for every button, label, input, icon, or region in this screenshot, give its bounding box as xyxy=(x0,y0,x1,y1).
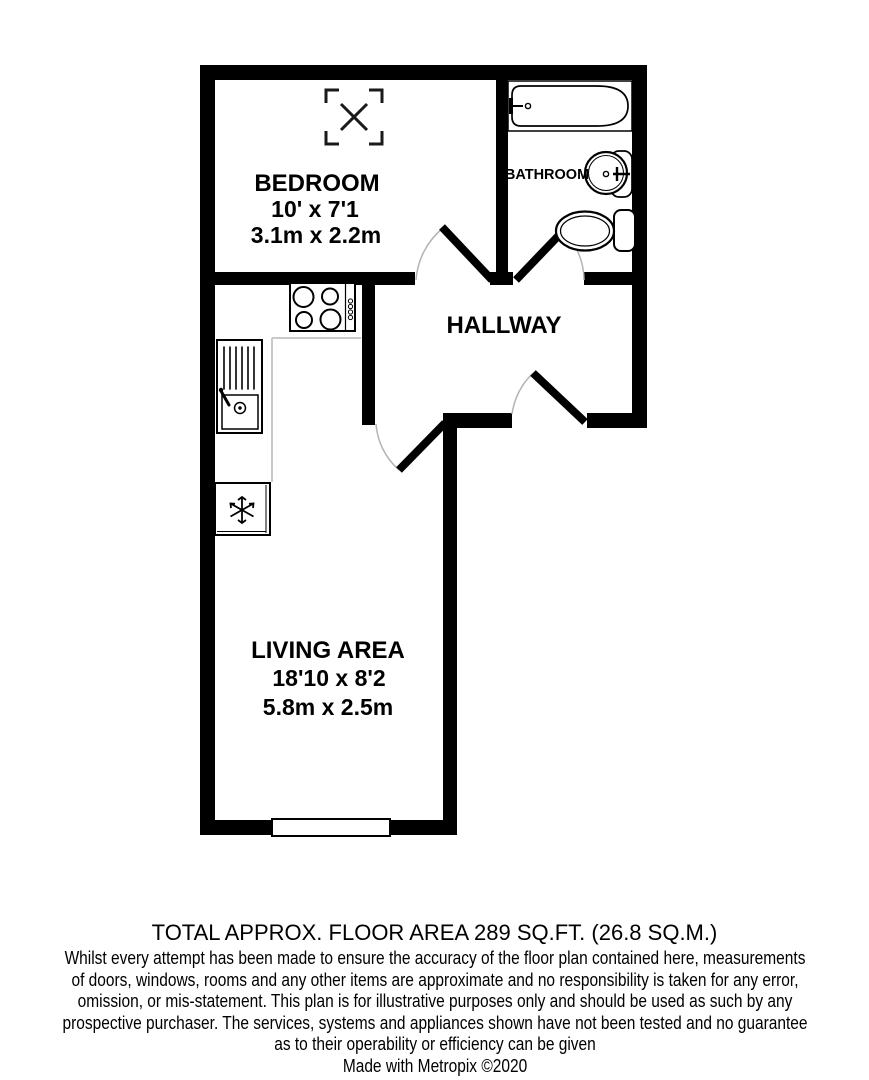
disclaimer: Whilst every attempt has been made to en… xyxy=(0,948,869,1077)
floorplan-page: { "rooms": { "bedroom": { "label": "BEDR… xyxy=(0,0,869,1080)
disclaimer-line: of doors, windows, rooms and any other i… xyxy=(0,970,869,992)
door-leaf xyxy=(442,227,492,280)
disclaimer-line: omission, or mis-statement. This plan is… xyxy=(0,991,869,1013)
window-icon xyxy=(272,819,390,836)
bedroom-dimensions-metric: 3.1m x 2.2m xyxy=(251,222,381,249)
hallway-label: HALLWAY xyxy=(446,312,561,340)
toilet-icon xyxy=(556,210,635,251)
floorplan-drawing xyxy=(0,0,869,900)
basin-icon xyxy=(585,151,632,197)
door-swing-arc xyxy=(416,228,443,280)
disclaimer-line: Whilst every attempt has been made to en… xyxy=(0,948,869,970)
bathroom-label: BATHROOM xyxy=(505,167,589,183)
disclaimer-line: prospective purchaser. The services, sys… xyxy=(0,1013,869,1035)
wall-hallway-bottom-right xyxy=(587,413,647,428)
living-area-dimensions-metric: 5.8m x 2.5m xyxy=(263,694,393,721)
counter-edge xyxy=(272,338,361,482)
credit-line: Made with Metropix ©2020 xyxy=(0,1056,869,1078)
bedroom-door xyxy=(416,227,492,280)
living-area-label: LIVING AREA xyxy=(251,637,405,665)
kitchen-sink-icon xyxy=(217,340,262,433)
bathtub-icon xyxy=(508,81,632,131)
hob-icon xyxy=(290,283,355,331)
wall-bathroom-bottom xyxy=(584,272,647,285)
living-room-door xyxy=(376,423,445,470)
living-area-dimensions-imperial: 18'10 x 8'2 xyxy=(272,665,385,692)
skylight-window-icon xyxy=(326,90,382,144)
door-swing-arc xyxy=(512,373,533,414)
door-swing-arc xyxy=(376,424,399,470)
fridge-icon xyxy=(215,483,270,535)
front-door xyxy=(512,373,585,422)
door-leaf xyxy=(399,423,445,470)
door-leaf xyxy=(516,231,563,280)
bedroom-dimensions-imperial: 10' x 7'1 xyxy=(271,196,359,223)
wall-top xyxy=(200,65,647,80)
total-floor-area: TOTAL APPROX. FLOOR AREA 289 SQ.FT. (26.… xyxy=(0,920,869,946)
disclaimer-line: as to their operability or efficiency ca… xyxy=(0,1034,869,1056)
bedroom-label: BEDROOM xyxy=(254,170,379,198)
wall-left xyxy=(200,65,215,835)
door-leaf xyxy=(533,373,585,422)
wall-hallway-left xyxy=(362,272,375,425)
wall-living-right xyxy=(443,413,457,835)
